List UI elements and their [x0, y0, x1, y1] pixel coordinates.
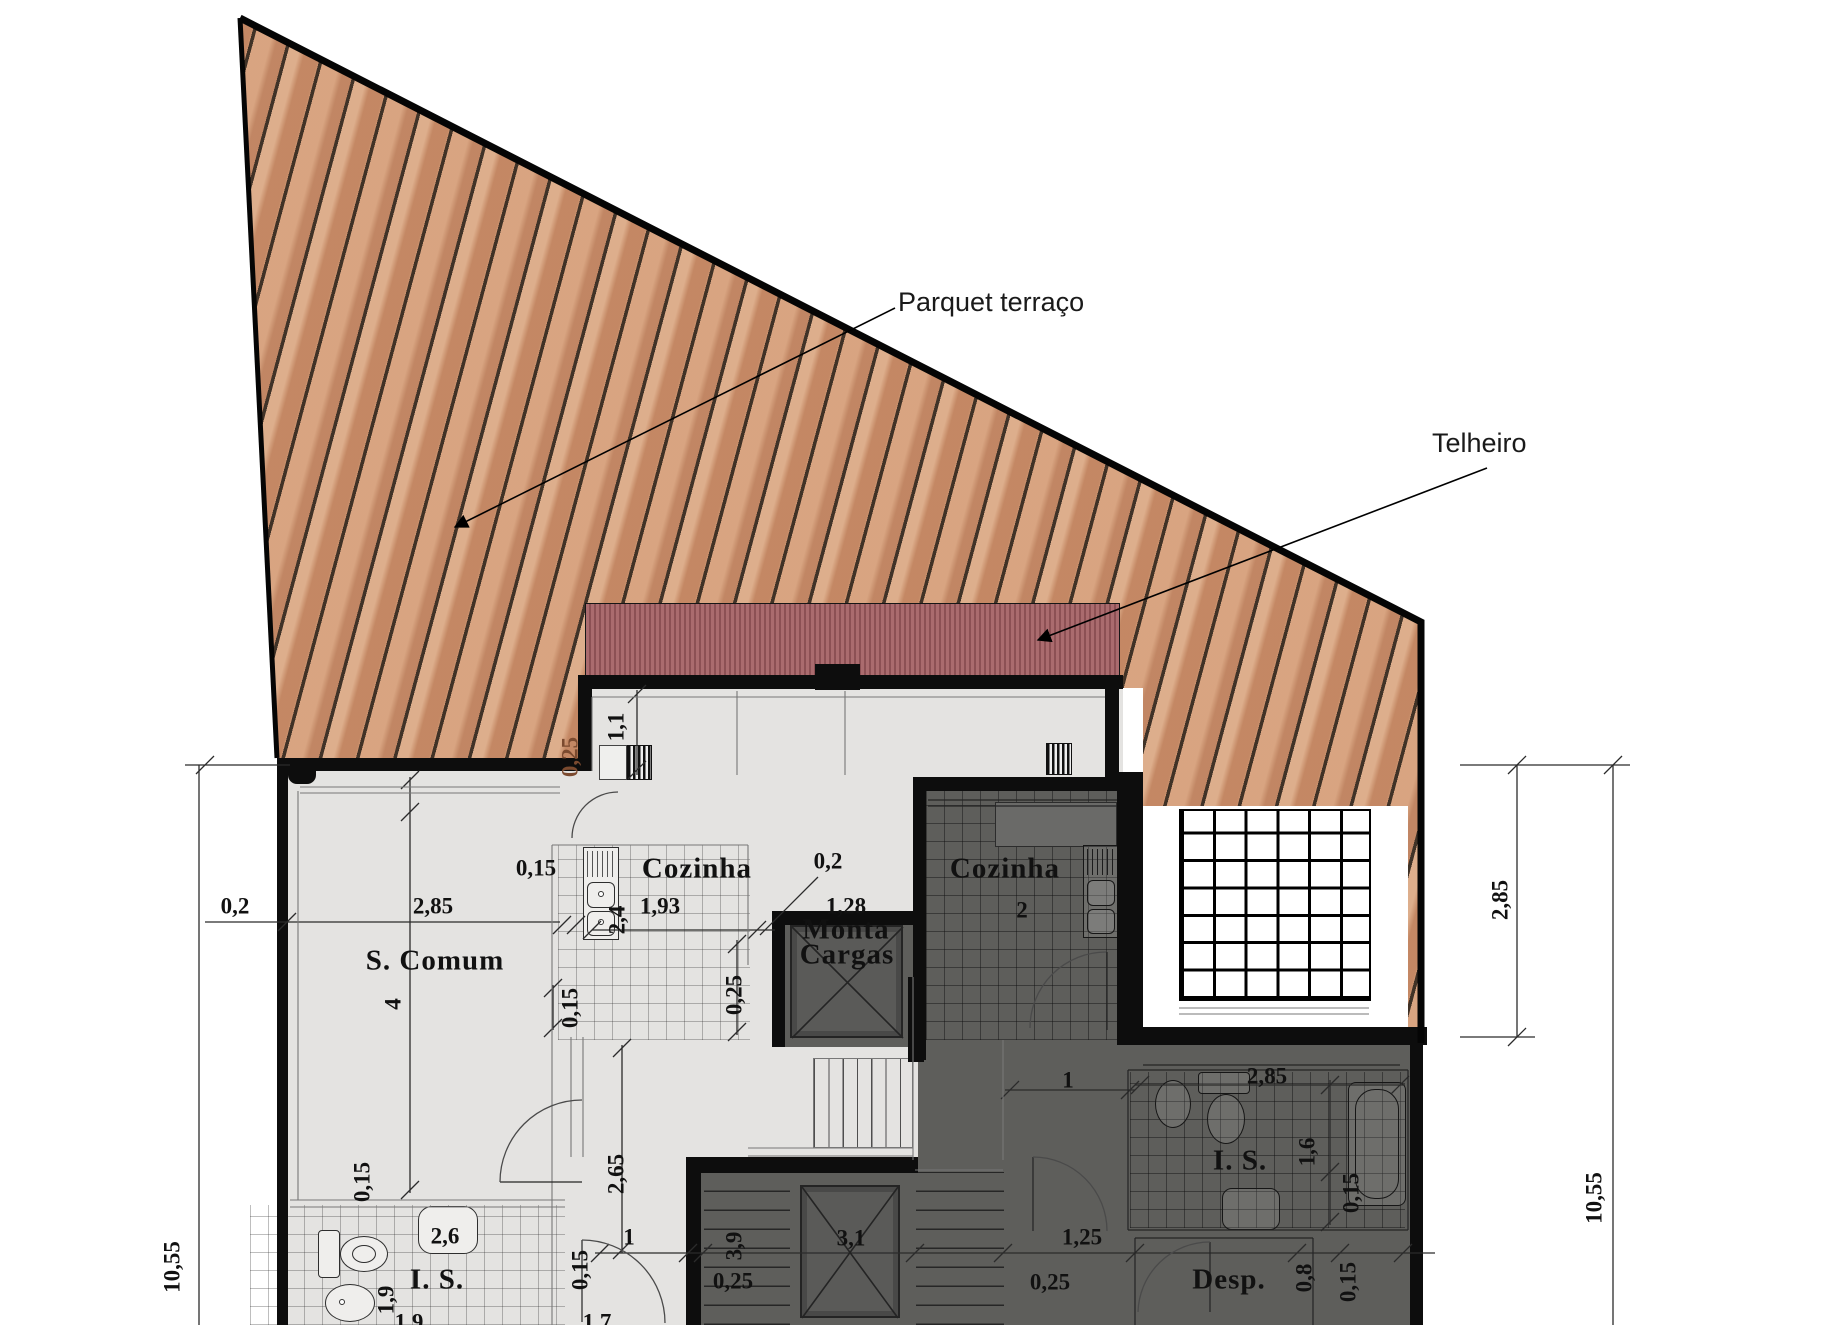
- dim-label: 0,15: [516, 857, 556, 880]
- dim-label: 1,93: [640, 895, 680, 918]
- room-number-cozinha-2: 2: [1016, 899, 1028, 922]
- dim-label: 0,2: [814, 850, 843, 873]
- room-label-s-comum: S. Comum: [366, 947, 505, 976]
- dim-label: 0,15: [569, 1250, 592, 1290]
- labels-layer: CozinhaCozinha2S. Comum4MontaCargasI. S.…: [0, 0, 1842, 1325]
- dim-label: 0,8: [1293, 1264, 1316, 1293]
- dim-label: 1: [1062, 1069, 1074, 1092]
- dim-label: 0,25: [723, 975, 746, 1015]
- dim-label: 4: [382, 998, 405, 1010]
- dim-label: 2,65: [605, 1154, 628, 1194]
- dim-label: 1,1: [605, 713, 628, 742]
- dim-label: 1,28: [826, 895, 866, 918]
- dim-label: 0,15: [351, 1162, 374, 1202]
- room-label-cozinha-1: Cozinha: [642, 855, 752, 884]
- dim-label: 1,6: [1296, 1138, 1319, 1167]
- room-label-is-2: I. S.: [1213, 1147, 1267, 1176]
- dim-label: 1,25: [1062, 1226, 1102, 1249]
- dim-label: 1,9: [395, 1311, 424, 1325]
- dim-label: 1,7: [583, 1311, 612, 1325]
- dim-label: 2,6: [431, 1225, 460, 1248]
- floor-plan-canvas: Parquet terraço Telheiro CozinhaCozinha2…: [0, 0, 1842, 1325]
- dim-label: 10,55: [1583, 1172, 1606, 1224]
- dim-label: 2,85: [413, 895, 453, 918]
- dim-label: 0,25: [1030, 1271, 1070, 1294]
- dim-label: 2,85: [1247, 1065, 1287, 1088]
- dim-label: 1: [623, 1226, 635, 1249]
- dim-label: 0,15: [559, 988, 582, 1028]
- dim-label: 10,55: [161, 1241, 184, 1293]
- dim-label: 2,85: [1489, 880, 1512, 920]
- dim-label: 3,1: [837, 1227, 866, 1250]
- room-label-monta-cargas-2: Cargas: [800, 941, 895, 970]
- dim-label: 0,15: [1340, 1173, 1363, 1213]
- room-label-is-1: I. S.: [410, 1266, 464, 1295]
- dim-label-deck: 0,25: [559, 737, 582, 777]
- dim-label: 0,25: [713, 1270, 753, 1293]
- room-label-cozinha-2: Cozinha: [950, 855, 1060, 884]
- dim-label: 2,4: [606, 906, 629, 935]
- room-label-desp: Desp.: [1192, 1266, 1265, 1295]
- dim-label: 0,15: [1337, 1262, 1360, 1302]
- dim-label: 0,2: [221, 895, 250, 918]
- dim-label: 3,9: [723, 1232, 746, 1261]
